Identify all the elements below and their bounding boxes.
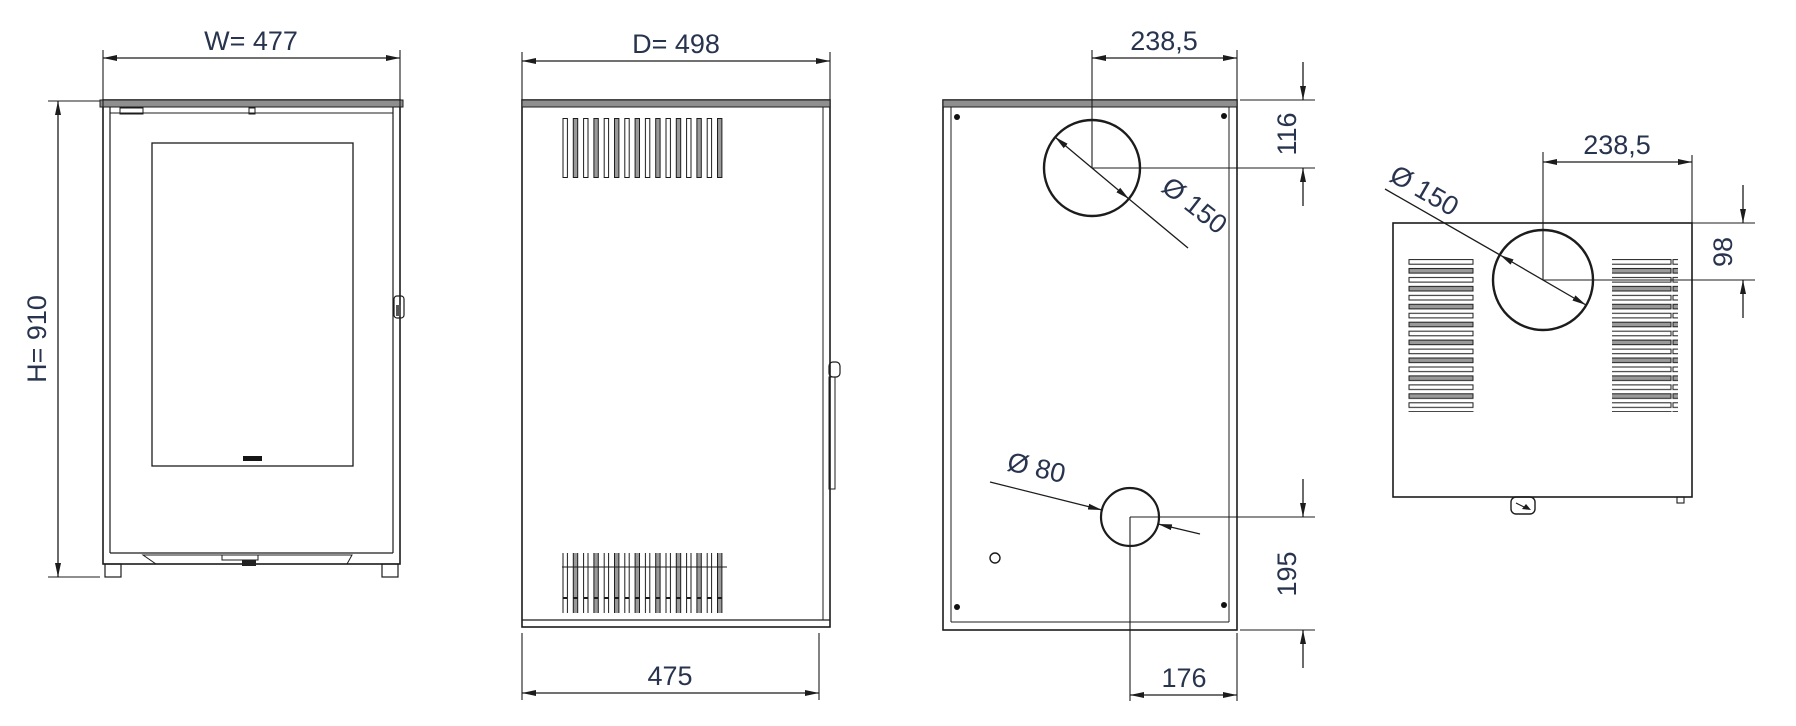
side-upper-vents xyxy=(562,118,727,178)
drawing-canvas: W= 477 H= 910 D= 498 475 xyxy=(0,0,1796,726)
brand-logo xyxy=(243,456,262,461)
flue-offset-x-label: 238,5 xyxy=(1130,26,1198,56)
inlet-offset-y-label: 195 xyxy=(1272,551,1302,596)
top-flue-offset-x-label: 238,5 xyxy=(1583,130,1651,160)
stove-dimension-drawing: W= 477 H= 910 D= 498 475 xyxy=(0,0,1796,726)
width-dimension-label: W= 477 xyxy=(204,26,298,56)
top-right-vents xyxy=(1612,259,1678,412)
screw-bottom-left xyxy=(954,604,960,610)
depth-dimension-label: D= 498 xyxy=(632,29,720,59)
top-flue-offset-y-label: 98 xyxy=(1708,237,1738,267)
side-lower-vents xyxy=(562,553,727,613)
ash-drawer-grip xyxy=(242,560,256,566)
back-top-band xyxy=(943,100,1237,107)
inlet-offset-x-label: 176 xyxy=(1161,663,1206,693)
side-top-band xyxy=(522,100,830,107)
flue-offset-y-label: 116 xyxy=(1272,112,1302,155)
top-left-vents xyxy=(1408,259,1474,412)
base-depth-dimension-label: 475 xyxy=(647,661,692,691)
screw-bottom-right xyxy=(1221,602,1227,608)
height-dimension-label: H= 910 xyxy=(22,295,52,383)
screw-top-right xyxy=(1221,113,1227,119)
door-handle-grip xyxy=(396,305,401,316)
background xyxy=(0,0,1796,726)
front-top-band xyxy=(100,100,403,107)
screw-top-left xyxy=(954,114,960,120)
